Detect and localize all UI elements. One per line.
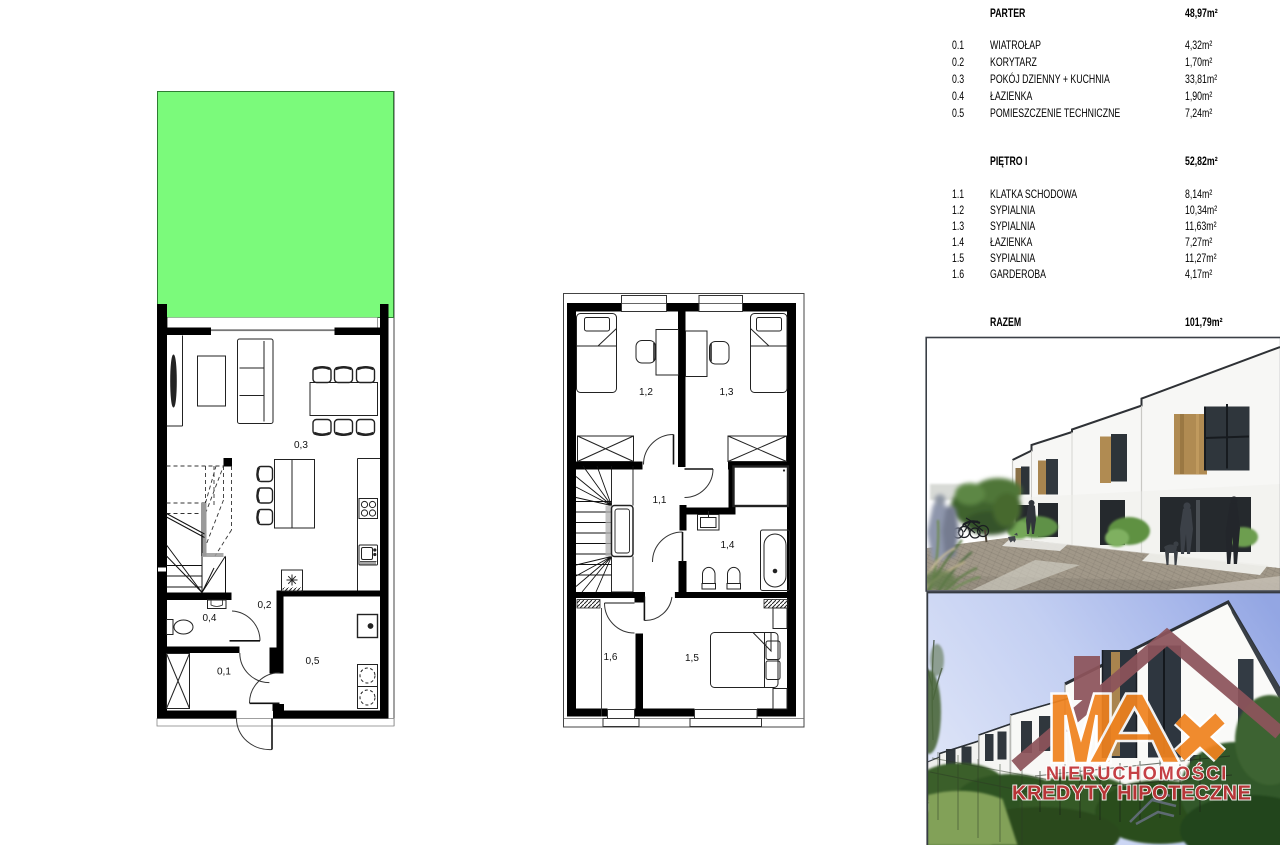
svg-text:1,4: 1,4 [721,540,735,551]
svg-text:1,5: 1,5 [685,653,699,664]
svg-text:0,2: 0,2 [258,600,272,611]
svg-text:KREDYTY HIPOTECZNE: KREDYTY HIPOTECZNE [1012,783,1252,805]
svg-text:1,3: 1,3 [720,387,734,398]
svg-text:0,1: 0,1 [217,667,231,678]
svg-text:NIERUCHOMOŚCI: NIERUCHOMOŚCI [1046,763,1228,784]
svg-text:1,1: 1,1 [653,495,667,506]
svg-text:1,6: 1,6 [604,652,618,663]
svg-text:0,3: 0,3 [294,440,308,451]
svg-text:0,5: 0,5 [306,656,320,667]
svg-text:1,2: 1,2 [639,387,653,398]
svg-text:0,4: 0,4 [203,613,217,624]
